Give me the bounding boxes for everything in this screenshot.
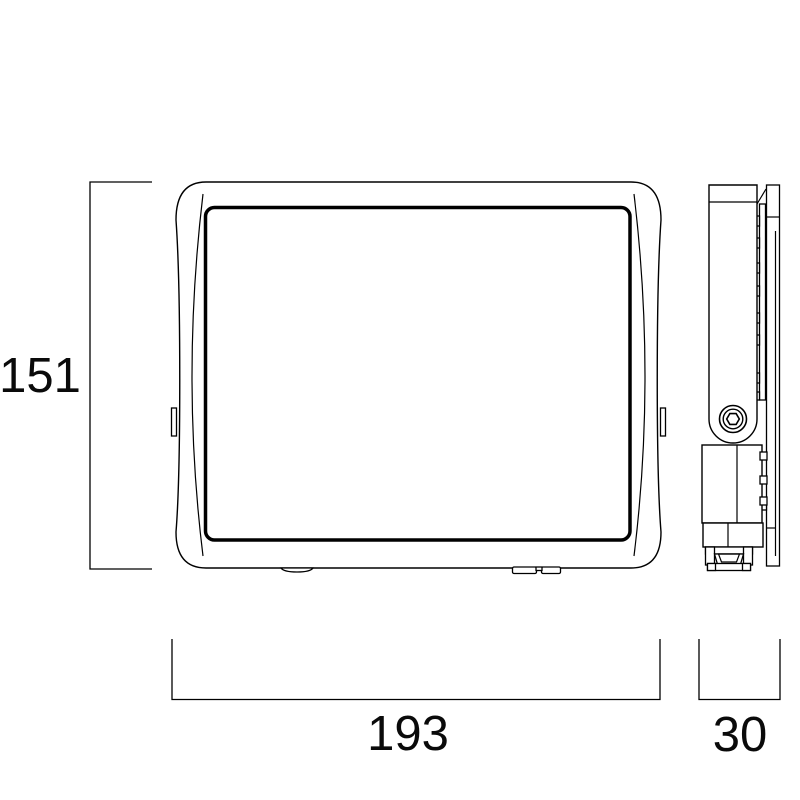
- gland-bottom-cap-left: [708, 564, 716, 571]
- driver-box-fin: [760, 452, 767, 460]
- front-connector-joint: [536, 567, 542, 571]
- front-hinge-tab-left: [172, 408, 177, 436]
- front-bottom-bump: [281, 568, 313, 572]
- side-view: [702, 185, 780, 571]
- dimension-width-label: 193: [367, 707, 449, 761]
- front-view: [172, 182, 666, 574]
- dimension-height-label: 151: [0, 349, 81, 403]
- side-cable-gland: [706, 547, 753, 571]
- gland-side-tab-right: [744, 547, 753, 565]
- technical-drawing-page: 151 193 30: [0, 0, 800, 800]
- front-connector-right-block: [542, 567, 561, 574]
- dimension-depth-label: 30: [713, 708, 768, 762]
- front-outer-housing-outline: [176, 182, 661, 568]
- driver-box-fin: [760, 497, 767, 505]
- gland-side-tab-left: [706, 547, 715, 565]
- gland-bottom-cap-right: [743, 564, 751, 571]
- front-bottom-connector: [513, 567, 561, 574]
- side-fin-strip: [760, 204, 766, 400]
- side-back-plate: [767, 185, 780, 566]
- front-connector-left-block: [513, 567, 537, 574]
- driver-box-fin: [760, 476, 767, 484]
- side-terminal-box: [703, 523, 763, 547]
- floodlight-dimension-drawing: 151 193 30: [0, 0, 800, 800]
- side-lamp-body: [709, 185, 757, 443]
- side-driver-box: [702, 445, 762, 523]
- front-hinge-tab-right: [661, 408, 666, 436]
